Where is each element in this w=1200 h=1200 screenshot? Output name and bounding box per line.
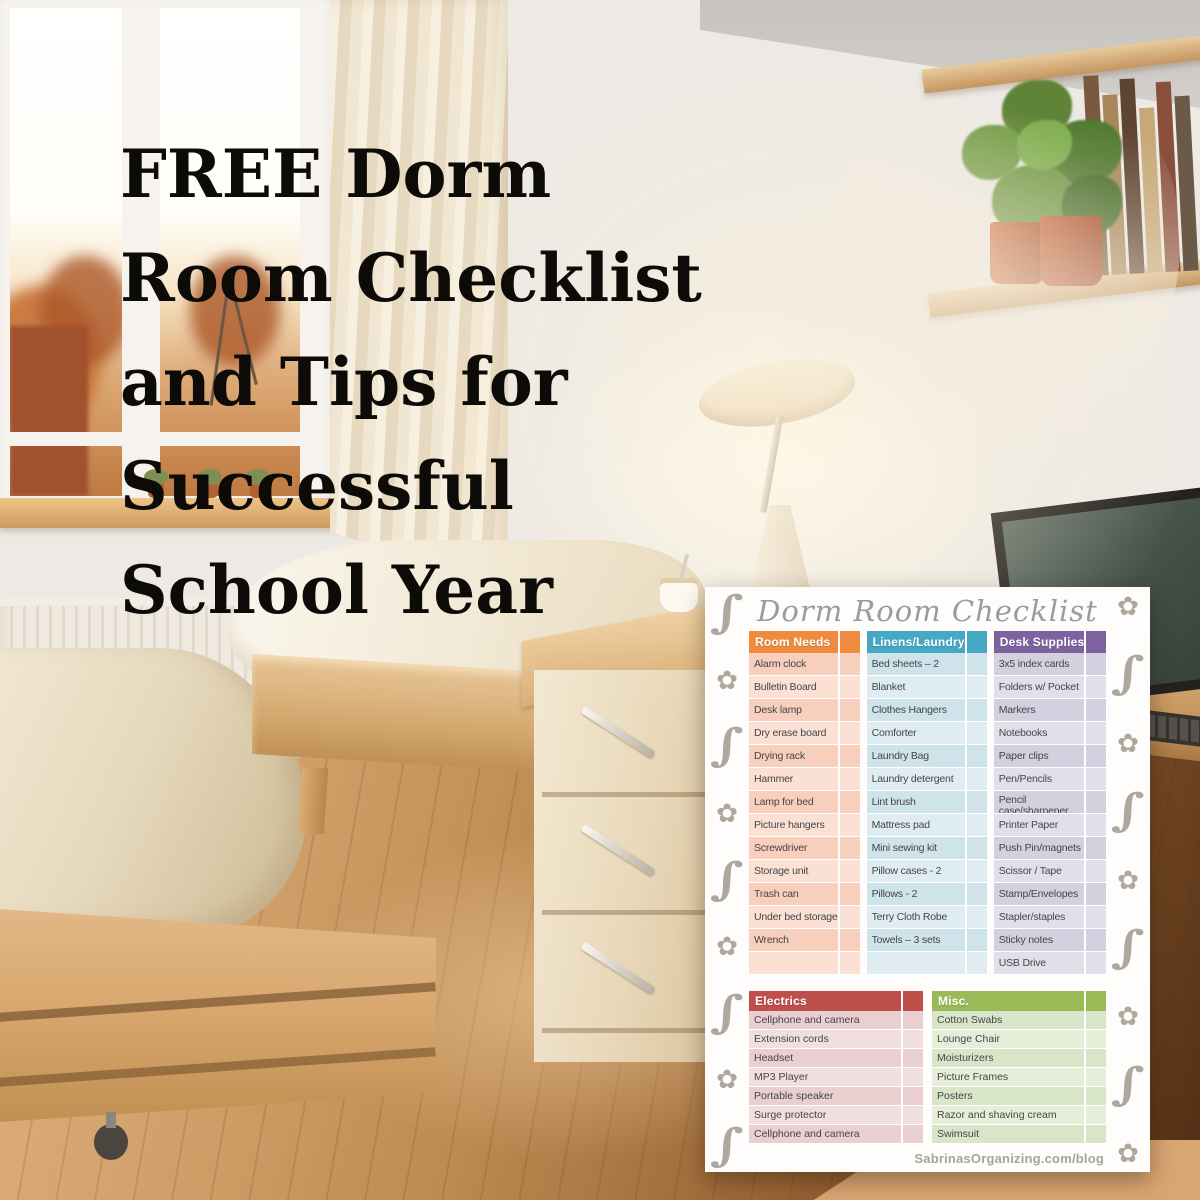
check-cell	[901, 1030, 923, 1048]
checklist-item: Cellphone and camera	[749, 1125, 923, 1144]
checklist-item: Push Pin/magnets	[994, 837, 1107, 860]
flourish-flower-icon: ✿	[716, 667, 738, 693]
checklist-item-label: Dry erase board	[749, 722, 838, 744]
headline-line: Successful	[120, 434, 702, 538]
flourish-swirl-icon: ∫	[710, 993, 744, 1033]
checklist-item-label: Pillows - 2	[867, 883, 965, 905]
check-cell	[965, 883, 987, 905]
checklist-item-label	[749, 952, 838, 974]
checklist-item: Surge protector	[749, 1106, 923, 1125]
section-misc: Misc.Cotton SwabsLounge ChairMoisturizer…	[932, 991, 1106, 1144]
checklist-item-label	[867, 952, 965, 974]
check-cell	[1084, 929, 1106, 951]
section-header-room-needs: Room Needs	[749, 631, 860, 653]
checklist-item-label: Screwdriver	[749, 837, 838, 859]
headline-line: FREE Dorm	[120, 122, 702, 226]
checklist-item-label: Clothes Hangers	[867, 699, 965, 721]
check-column-header	[1084, 631, 1106, 653]
check-cell	[965, 676, 987, 698]
checklist-empty-row	[749, 952, 860, 975]
nightstand-drawer	[542, 810, 706, 915]
checklist-item-label: Markers	[994, 699, 1085, 721]
check-cell	[838, 745, 860, 767]
checklist-item-label: Posters	[932, 1087, 1084, 1105]
checklist-item: Extension cords	[749, 1030, 923, 1049]
checklist-item-label: Pencil case/sharpener	[994, 791, 1085, 813]
checklist-item-label: Portable speaker	[749, 1087, 901, 1105]
check-cell	[965, 952, 987, 974]
check-cell	[1084, 722, 1106, 744]
checklist-item: Cellphone and camera	[749, 1011, 923, 1030]
checklist-item-label: Wrench	[749, 929, 838, 951]
flourish-flower-icon: ✿	[1117, 1140, 1139, 1166]
checklist-item-label: Pen/Pencils	[994, 768, 1085, 790]
checklist-item-label: Bulletin Board	[749, 676, 838, 698]
check-cell	[1084, 1087, 1106, 1105]
checklist-item: Drying rack	[749, 745, 860, 768]
check-column-header	[838, 631, 860, 653]
flourish-swirl-icon: ∫	[1111, 654, 1145, 694]
checklist-item-label: Cotton Swabs	[932, 1011, 1084, 1029]
checklist-item-label: Storage unit	[749, 860, 838, 882]
section-linens-laundry: Linens/LaundryBed sheets – 2BlanketCloth…	[867, 631, 987, 975]
section-header-label: Misc.	[932, 994, 1084, 1008]
checklist-item: Dry erase board	[749, 722, 860, 745]
section-header-electrics: Electrics	[749, 991, 923, 1011]
checklist-item: Bed sheets – 2	[867, 653, 987, 676]
headline-line: School Year	[120, 538, 702, 642]
flourish-swirl-icon: ∫	[1111, 928, 1145, 968]
checklist-content: Dorm Room Checklist Room NeedsAlarm cloc…	[749, 591, 1106, 1166]
section-header-misc: Misc.	[932, 991, 1106, 1011]
check-cell	[838, 929, 860, 951]
checklist-item-label: MP3 Player	[749, 1068, 901, 1086]
checklist-item-label: Push Pin/magnets	[994, 837, 1085, 859]
checklist-item-label: Lamp for bed	[749, 791, 838, 813]
checklist-item: Pillow cases - 2	[867, 860, 987, 883]
checklist-item-label: Hammer	[749, 768, 838, 790]
section-header-desk-supplies: Desk Supplies	[994, 631, 1107, 653]
check-cell	[901, 1106, 923, 1124]
check-cell	[965, 929, 987, 951]
check-cell	[965, 722, 987, 744]
checklist-item: Printer Paper	[994, 814, 1107, 837]
checklist-item-label: Cellphone and camera	[749, 1125, 901, 1143]
drawer-handle	[581, 942, 656, 994]
check-cell	[965, 791, 987, 813]
check-cell	[965, 653, 987, 675]
checklist-item-label: Cellphone and camera	[749, 1011, 901, 1029]
checklist-item-label: Mini sewing kit	[867, 837, 965, 859]
checklist-item: Cotton Swabs	[932, 1011, 1106, 1030]
checklist-empty-row	[867, 952, 987, 975]
check-cell	[838, 768, 860, 790]
section-header-linens-laundry: Linens/Laundry	[867, 631, 987, 653]
checklist-item: Pen/Pencils	[994, 768, 1107, 791]
headline-line: and Tips for	[120, 330, 702, 434]
check-cell	[965, 814, 987, 836]
section-room-needs: Room NeedsAlarm clockBulletin BoardDesk …	[749, 631, 860, 975]
check-cell	[965, 906, 987, 928]
checklist-item-label: Pillow cases - 2	[867, 860, 965, 882]
flourish-border-right: ✿∫✿∫✿∫✿∫✿	[1112, 593, 1144, 1166]
check-cell	[1084, 860, 1106, 882]
checklist-item: Bulletin Board	[749, 676, 860, 699]
check-cell	[1084, 791, 1106, 813]
checklist-item: Posters	[932, 1087, 1106, 1106]
checklist-item: Towels – 3 sets	[867, 929, 987, 952]
checklist-item-label: Under bed storage	[749, 906, 838, 928]
checklist-item: Sticky notes	[994, 929, 1107, 952]
checklist-item: Portable speaker	[749, 1087, 923, 1106]
checklist-item-label: Blanket	[867, 676, 965, 698]
check-cell	[838, 722, 860, 744]
checklist-item-label: Lint brush	[867, 791, 965, 813]
brick-building	[10, 326, 88, 496]
check-cell	[1084, 906, 1106, 928]
checklist-card: ∫✿∫✿∫✿∫✿∫ ✿∫✿∫✿∫✿∫✿ Dorm Room Checklist …	[705, 587, 1150, 1172]
check-cell	[1084, 952, 1106, 974]
flourish-swirl-icon: ∫	[710, 1126, 744, 1166]
check-cell	[838, 860, 860, 882]
checklist-item-label: Desk lamp	[749, 699, 838, 721]
checklist-item-label: Towels – 3 sets	[867, 929, 965, 951]
checklist-item-label: Folders w/ Pocket	[994, 676, 1085, 698]
checklist-item-label: Picture hangers	[749, 814, 838, 836]
checklist-item: Headset	[749, 1049, 923, 1068]
flourish-flower-icon: ✿	[1117, 867, 1139, 893]
flourish-flower-icon: ✿	[1117, 730, 1139, 756]
checklist-item-label: Scissor / Tape	[994, 860, 1085, 882]
flourish-flower-icon: ✿	[1117, 593, 1139, 619]
headline: FREE Dorm Room Checklist and Tips for Su…	[120, 122, 702, 642]
checklist-item-label: Laundry detergent	[867, 768, 965, 790]
left-bed-drawer-base	[0, 908, 436, 1123]
site-credit: SabrinasOrganizing.com/blog	[749, 1148, 1106, 1166]
checklist-item: Desk lamp	[749, 699, 860, 722]
check-cell	[901, 1125, 923, 1143]
check-cell	[838, 791, 860, 813]
check-cell	[838, 814, 860, 836]
drawer-handle	[581, 824, 656, 876]
section-header-label: Electrics	[749, 994, 901, 1008]
checklist-item: Moisturizers	[932, 1049, 1106, 1068]
checklist-item-label: Moisturizers	[932, 1049, 1084, 1067]
checklist-item-label: 3x5 index cards	[994, 653, 1085, 675]
check-cell	[1084, 814, 1106, 836]
pin-image: FREE Dorm Room Checklist and Tips for Su…	[0, 0, 1200, 1200]
checklist-item: Picture Frames	[932, 1068, 1106, 1087]
headline-line: Room Checklist	[120, 226, 702, 330]
check-cell	[1084, 837, 1106, 859]
check-cell	[965, 699, 987, 721]
section-electrics: ElectricsCellphone and cameraExtension c…	[749, 991, 923, 1144]
checklist-item-label: USB Drive	[994, 952, 1085, 974]
section-header-label: Desk Supplies	[994, 635, 1085, 649]
checklist-item: Pillows - 2	[867, 883, 987, 906]
checklist-item-label: Bed sheets – 2	[867, 653, 965, 675]
check-cell	[901, 1068, 923, 1086]
flourish-swirl-icon: ∫	[710, 726, 744, 766]
check-cell	[1084, 676, 1106, 698]
check-cell	[901, 1087, 923, 1105]
checklist-item-label: Surge protector	[749, 1106, 901, 1124]
check-cell	[1084, 653, 1106, 675]
checklist-item: 3x5 index cards	[994, 653, 1107, 676]
flourish-swirl-icon: ∫	[1111, 1065, 1145, 1105]
checklist-item-label: Trash can	[749, 883, 838, 905]
checklist-item: Swimsuit	[932, 1125, 1106, 1144]
checklist-item: Comforter	[867, 722, 987, 745]
check-cell	[838, 699, 860, 721]
checklist-item: Alarm clock	[749, 653, 860, 676]
check-column-header	[965, 631, 987, 653]
check-cell	[1084, 1011, 1106, 1029]
checklist-item-label: Lounge Chair	[932, 1030, 1084, 1048]
flourish-flower-icon: ✿	[1117, 1003, 1139, 1029]
section-desk-supplies: Desk Supplies3x5 index cardsFolders w/ P…	[994, 631, 1107, 975]
checklist-item-label: Printer Paper	[994, 814, 1085, 836]
check-column-header	[1084, 991, 1106, 1011]
checklist-item-label: Picture Frames	[932, 1068, 1084, 1086]
flourish-flower-icon: ✿	[716, 800, 738, 826]
checklist-item: Mattress pad	[867, 814, 987, 837]
checklist-item: Scissor / Tape	[994, 860, 1107, 883]
checklist-item: Mini sewing kit	[867, 837, 987, 860]
checklist-item-label: Mattress pad	[867, 814, 965, 836]
checklist-item-label: Headset	[749, 1049, 901, 1067]
checklist-item: Paper clips	[994, 745, 1107, 768]
flourish-flower-icon: ✿	[716, 933, 738, 959]
checklist-item-label: Razor and shaving cream	[932, 1106, 1084, 1124]
check-cell	[1084, 768, 1106, 790]
checklist-item: Folders w/ Pocket	[994, 676, 1107, 699]
checklist-item: USB Drive	[994, 952, 1107, 975]
check-cell	[1084, 745, 1106, 767]
check-cell	[965, 745, 987, 767]
checklist-item: Trash can	[749, 883, 860, 906]
checklist-item-label: Comforter	[867, 722, 965, 744]
checklist-item: Lounge Chair	[932, 1030, 1106, 1049]
checklist-bottom-sections: ElectricsCellphone and cameraExtension c…	[749, 991, 1106, 1144]
section-header-label: Room Needs	[749, 635, 838, 649]
check-cell	[838, 883, 860, 905]
check-cell	[901, 1049, 923, 1067]
checklist-item: Stapler/staples	[994, 906, 1107, 929]
checklist-item-label: Notebooks	[994, 722, 1085, 744]
checklist-item: Under bed storage	[749, 906, 860, 929]
flourish-swirl-icon: ∫	[1111, 791, 1145, 831]
flourish-swirl-icon: ∫	[710, 593, 744, 633]
checklist-item-label: Swimsuit	[932, 1125, 1084, 1143]
window-pane-left	[10, 8, 122, 496]
check-cell	[838, 837, 860, 859]
checklist-item: Lint brush	[867, 791, 987, 814]
checklist-item: Wrench	[749, 929, 860, 952]
checklist-item: Laundry detergent	[867, 768, 987, 791]
checklist-item: Markers	[994, 699, 1107, 722]
check-cell	[1084, 1106, 1106, 1124]
checklist-item: Pencil case/sharpener	[994, 791, 1107, 814]
check-cell	[1084, 1125, 1106, 1143]
checklist-item: Notebooks	[994, 722, 1107, 745]
check-cell	[965, 860, 987, 882]
check-column-header	[901, 991, 923, 1011]
checklist-item: Picture hangers	[749, 814, 860, 837]
flourish-flower-icon: ✿	[716, 1066, 738, 1092]
checklist-item: Razor and shaving cream	[932, 1106, 1106, 1125]
check-cell	[965, 768, 987, 790]
checklist-item-label: Alarm clock	[749, 653, 838, 675]
checklist-item-label: Paper clips	[994, 745, 1085, 767]
checklist-item: Laundry Bag	[867, 745, 987, 768]
checklist-item: Clothes Hangers	[867, 699, 987, 722]
checklist-item: Storage unit	[749, 860, 860, 883]
checklist-top-sections: Room NeedsAlarm clockBulletin BoardDesk …	[749, 631, 1106, 987]
checklist-item: Terry Cloth Robe	[867, 906, 987, 929]
checklist-item-label: Terry Cloth Robe	[867, 906, 965, 928]
checklist-item: Hammer	[749, 768, 860, 791]
checklist-item-label: Stapler/staples	[994, 906, 1085, 928]
checklist-item-label: Stamp/Envelopes	[994, 883, 1085, 905]
check-cell	[1084, 1030, 1106, 1048]
check-cell	[1084, 1068, 1106, 1086]
check-cell	[1084, 699, 1106, 721]
check-cell	[1084, 1049, 1106, 1067]
check-cell	[1084, 883, 1106, 905]
flourish-swirl-icon: ∫	[710, 860, 744, 900]
check-cell	[838, 653, 860, 675]
left-bed-caster-wheel	[92, 1112, 130, 1162]
checklist-item-label: Laundry Bag	[867, 745, 965, 767]
checklist-item: Stamp/Envelopes	[994, 883, 1107, 906]
checklist-item-label: Extension cords	[749, 1030, 901, 1048]
nightstand-drawer	[542, 928, 706, 1033]
checklist-item: Lamp for bed	[749, 791, 860, 814]
checklist-item: Screwdriver	[749, 837, 860, 860]
checklist-title: Dorm Room Checklist	[749, 591, 1106, 631]
checklist-item-label: Drying rack	[749, 745, 838, 767]
check-cell	[838, 906, 860, 928]
checklist-item-label: Sticky notes	[994, 929, 1085, 951]
checklist-item: Blanket	[867, 676, 987, 699]
check-cell	[965, 837, 987, 859]
check-cell	[838, 676, 860, 698]
check-cell	[838, 952, 860, 974]
flourish-border-left: ∫✿∫✿∫✿∫✿∫	[711, 593, 743, 1166]
check-cell	[901, 1011, 923, 1029]
center-bed-leg	[298, 768, 329, 834]
checklist-item: MP3 Player	[749, 1068, 923, 1087]
section-header-label: Linens/Laundry	[867, 635, 965, 649]
